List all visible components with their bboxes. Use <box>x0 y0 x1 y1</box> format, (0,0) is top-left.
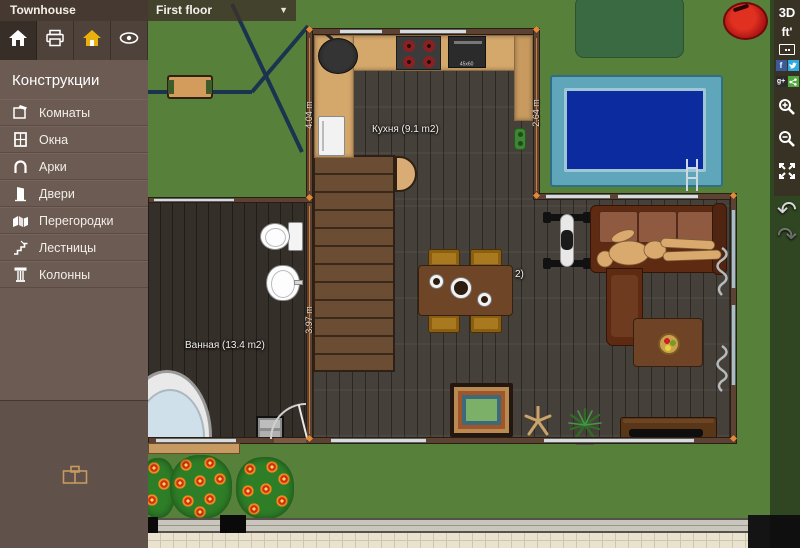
exercise-machine[interactable] <box>545 212 589 270</box>
stairs-icon <box>12 239 29 256</box>
fridge[interactable] <box>318 116 345 156</box>
mannequin-figure[interactable] <box>593 226 725 278</box>
bidet[interactable] <box>266 265 304 301</box>
stove[interactable] <box>396 36 441 70</box>
curtain-wave <box>715 345 729 393</box>
room-label-kitchen: Кухня (9.1 m2) <box>372 124 439 135</box>
zoom-out-icon[interactable] <box>778 130 796 153</box>
googleplus-icon[interactable]: g+ <box>776 76 787 87</box>
floor-selector[interactable]: First floor ▼ <box>148 0 296 21</box>
view-3d-button[interactable]: 3D <box>779 6 796 20</box>
pool-water <box>564 88 706 172</box>
sidebar-item-label: Двери <box>39 187 75 201</box>
floor-planner-app: 45x60 2) <box>0 0 800 548</box>
sidewalk <box>148 533 800 548</box>
oven-handle <box>454 41 482 44</box>
sidebar-item-columns[interactable]: Колонны <box>0 261 148 288</box>
dimension-label: 2.64 m <box>531 99 541 127</box>
plate <box>430 275 443 288</box>
window[interactable] <box>154 198 234 202</box>
bbq-grill[interactable] <box>723 2 768 40</box>
toilet[interactable] <box>260 221 304 252</box>
grill-handle <box>733 4 749 13</box>
sidebar-item-rooms[interactable]: Комнаты <box>0 99 148 126</box>
view-toolbar: 3D ft' f g+ <box>774 0 800 196</box>
window[interactable] <box>400 29 466 34</box>
print-button[interactable] <box>37 21 74 60</box>
house-style-button[interactable] <box>74 21 111 60</box>
project-title: Townhouse <box>0 0 148 21</box>
eye-icon <box>119 31 139 50</box>
kitchen-sink-round[interactable] <box>318 38 358 74</box>
columns-icon <box>12 266 29 283</box>
plate <box>478 293 491 306</box>
window[interactable] <box>331 438 426 443</box>
printer-icon <box>45 29 65 52</box>
windows-icon <box>12 131 29 148</box>
room-label-bathroom: Ванная (13.4 m2) <box>185 340 265 351</box>
sidebar-item-arches[interactable]: Арки <box>0 153 148 180</box>
rooms-icon <box>12 104 29 121</box>
sidebar-item-label: Комнаты <box>39 106 90 120</box>
dining-chair[interactable] <box>470 314 502 333</box>
window[interactable] <box>544 438 694 443</box>
bench-leg <box>168 80 174 94</box>
coffee-table[interactable] <box>633 318 703 367</box>
window[interactable] <box>731 210 736 288</box>
porch-step <box>148 443 240 454</box>
dimension-label: 3.97 m <box>304 306 314 334</box>
sidebar-item-label: Лестницы <box>39 241 96 255</box>
window[interactable] <box>618 194 698 199</box>
twitter-icon[interactable] <box>788 60 799 71</box>
starfish-decor[interactable] <box>524 406 552 436</box>
sidebar-item-label: Арки <box>39 160 67 174</box>
pool-ladder <box>686 159 700 191</box>
window[interactable] <box>731 305 736 385</box>
project-title-text: Townhouse <box>10 3 76 17</box>
sidebar-item-stairs[interactable]: Лестницы <box>0 234 148 261</box>
dining-chair[interactable] <box>428 314 460 333</box>
wall-outlet-green[interactable] <box>514 128 526 150</box>
visibility-button[interactable] <box>111 21 148 60</box>
main-toolbar <box>0 21 148 60</box>
flower-bush[interactable] <box>236 457 294 519</box>
garden-mat[interactable] <box>575 0 684 58</box>
sidebar-item-doors[interactable]: Двери <box>0 180 148 207</box>
furniture-icon[interactable] <box>62 465 88 490</box>
fullscreen-icon[interactable] <box>778 162 796 185</box>
gold-house-icon <box>82 29 102 52</box>
curtain-wave <box>715 247 729 297</box>
undo-icon[interactable]: ↶ <box>777 198 797 224</box>
window[interactable] <box>546 194 610 199</box>
chevron-down-icon: ▼ <box>279 0 288 21</box>
window[interactable] <box>340 29 382 34</box>
sidebar-item-label: Перегородки <box>39 214 113 228</box>
dimension-label: 4.04 m <box>304 101 314 129</box>
sidebar-item-windows[interactable]: Окна <box>0 126 148 153</box>
construction-sidebar: Конструкции Комнаты Окна Арки Двери <box>0 60 148 400</box>
rug[interactable] <box>450 383 513 437</box>
redo-icon[interactable]: ↷ <box>777 224 797 250</box>
history-controls: ↶ ↷ <box>777 198 797 250</box>
flower-bush[interactable] <box>170 455 232 519</box>
construction-mode-button[interactable] <box>0 21 37 60</box>
pool[interactable] <box>550 75 723 187</box>
sidebar-item-label: Колонны <box>39 268 90 282</box>
oven-size-label: 45x60 <box>460 62 474 68</box>
tv-flat <box>629 429 703 437</box>
floor-selector-value: First floor <box>156 0 212 21</box>
partitions-icon <box>12 212 29 229</box>
units-toggle-button[interactable]: ft' <box>782 25 793 39</box>
room-label-living-partial: 2) <box>515 269 524 280</box>
garden-bench[interactable] <box>167 75 213 99</box>
sidebar-header: Конструкции <box>0 60 148 99</box>
screenshot-icon[interactable] <box>779 44 795 55</box>
staircase[interactable] <box>313 155 395 372</box>
oven[interactable]: 45x60 <box>448 36 486 68</box>
fruit-bowl <box>658 333 680 355</box>
plate <box>451 278 471 298</box>
bench-leg <box>206 80 212 94</box>
zoom-in-icon[interactable] <box>778 98 796 121</box>
home-icon <box>8 29 28 52</box>
arches-icon <box>12 158 29 175</box>
sidebar-item-label: Окна <box>39 133 68 147</box>
doors-icon <box>12 185 29 202</box>
share-icon[interactable] <box>788 76 799 87</box>
sidebar-footer <box>0 400 148 548</box>
sidebar-item-partitions[interactable]: Перегородки <box>0 207 148 234</box>
facebook-icon[interactable]: f <box>776 60 787 71</box>
floorplan-canvas[interactable]: 45x60 2) <box>148 0 800 548</box>
